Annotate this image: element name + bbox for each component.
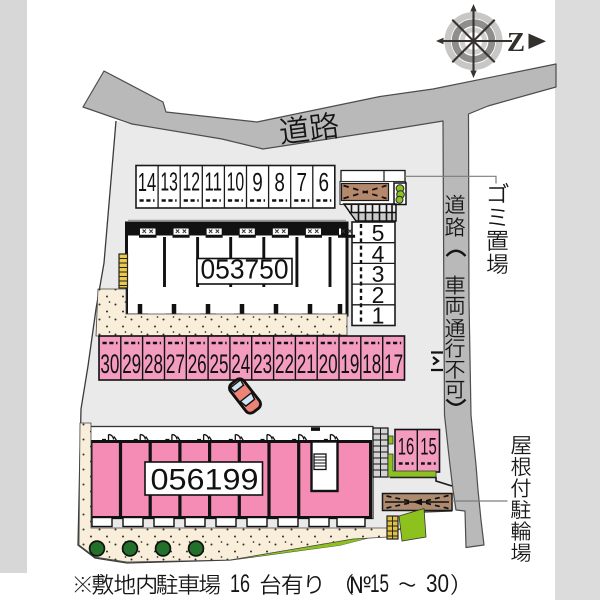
svg-text:12: 12 (182, 167, 200, 197)
svg-text:10: 10 (227, 167, 245, 197)
svg-text:15: 15 (420, 434, 437, 461)
svg-text:30: 30 (100, 349, 119, 379)
svg-text:21: 21 (297, 349, 316, 379)
svg-text:27: 27 (166, 349, 185, 379)
svg-text:13: 13 (160, 167, 178, 197)
svg-text:17: 17 (384, 349, 403, 379)
svg-text:22: 22 (275, 349, 294, 379)
svg-text:9: 9 (252, 167, 263, 197)
svg-text:15: 15 (370, 570, 389, 598)
svg-text:6: 6 (319, 167, 330, 197)
svg-text:7: 7 (296, 167, 307, 197)
svg-text:18: 18 (362, 349, 381, 379)
svg-text:30: 30 (426, 570, 449, 598)
svg-text:1: 1 (372, 303, 385, 329)
svg-text:29: 29 (122, 349, 141, 379)
svg-text:25: 25 (210, 349, 229, 379)
svg-text:26: 26 (188, 349, 207, 379)
svg-text:19: 19 (340, 349, 359, 379)
svg-text:24: 24 (231, 349, 250, 379)
svg-text:11: 11 (205, 167, 223, 197)
svg-text:8: 8 (274, 167, 285, 197)
svg-text:16: 16 (398, 434, 415, 461)
svg-text:23: 23 (253, 349, 272, 379)
svg-text:20: 20 (319, 349, 338, 379)
svg-text:Z: Z (507, 27, 525, 57)
svg-text:16: 16 (230, 570, 250, 598)
svg-text:053750: 053750 (201, 254, 289, 285)
svg-text:14: 14 (138, 167, 157, 197)
svg-text:28: 28 (144, 349, 163, 379)
svg-text:056199: 056199 (151, 464, 259, 497)
